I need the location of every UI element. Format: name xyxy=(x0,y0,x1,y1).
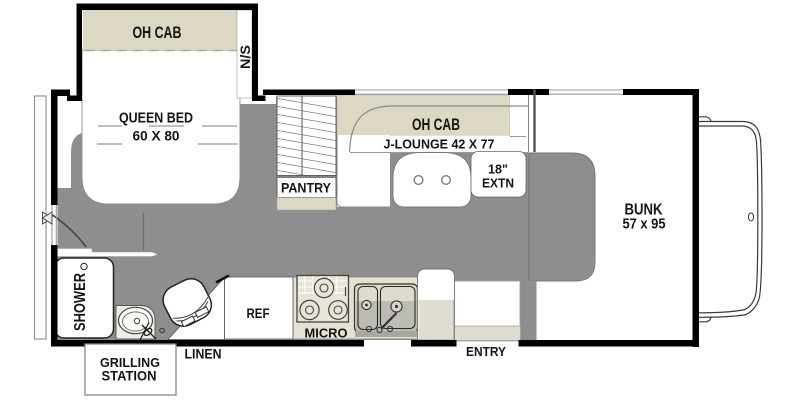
svg-text:STATION: STATION xyxy=(102,369,157,384)
svg-text:ENTRY: ENTRY xyxy=(466,344,506,359)
svg-text:18": 18" xyxy=(488,162,508,177)
svg-text:N/S: N/S xyxy=(238,45,253,69)
svg-text:J-LOUNGE 42 X 77: J-LOUNGE 42 X 77 xyxy=(384,137,495,152)
svg-text:57 x 95: 57 x 95 xyxy=(623,216,666,233)
svg-text:EXTN: EXTN xyxy=(482,176,514,191)
svg-text:SHOWER: SHOWER xyxy=(72,273,89,331)
svg-text:MICRO: MICRO xyxy=(305,326,348,341)
svg-text:QUEEN BED: QUEEN BED xyxy=(119,111,193,127)
svg-text:REF: REF xyxy=(247,306,270,321)
svg-text:LINEN: LINEN xyxy=(185,346,222,362)
svg-text:PANTRY: PANTRY xyxy=(281,180,332,196)
svg-text:OH CAB: OH CAB xyxy=(133,23,182,42)
svg-text:OH CAB: OH CAB xyxy=(412,116,460,134)
svg-text:60 X 80: 60 X 80 xyxy=(133,128,180,144)
